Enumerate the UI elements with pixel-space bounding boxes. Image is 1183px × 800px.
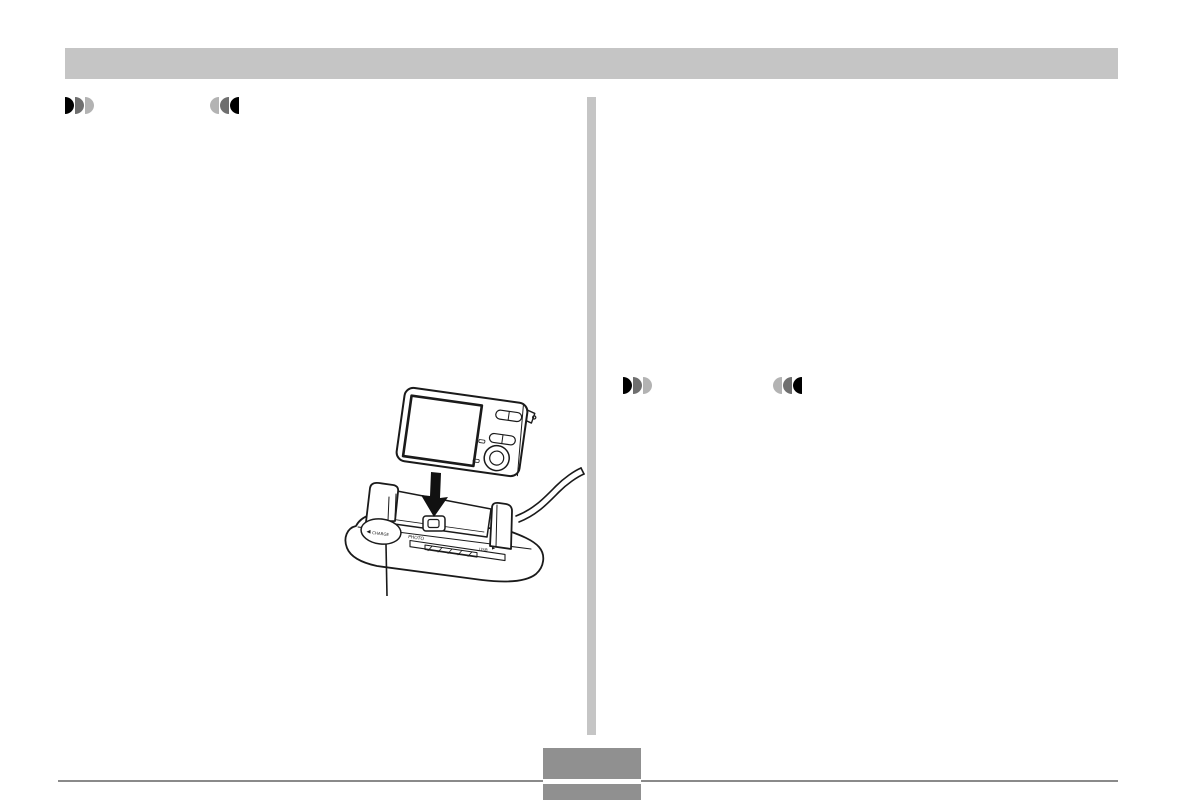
lcd-screen (403, 396, 482, 466)
marker-disc (793, 377, 802, 394)
marker-disc (65, 97, 74, 114)
marker-disc (220, 97, 229, 114)
section-marker-back-icon (773, 377, 802, 394)
section-marker-back-icon (210, 97, 239, 114)
marker-disc (85, 97, 94, 114)
manual-page: PHOTO USB CHARGE (0, 0, 1183, 800)
marker-disc (633, 377, 642, 394)
usb-cable (516, 468, 584, 522)
marker-disc (783, 377, 792, 394)
footer-rule (641, 780, 1118, 782)
marker-disc (230, 97, 239, 114)
section-marker-forward-icon (623, 377, 652, 394)
marker-disc (210, 97, 219, 114)
callout-leader-line (386, 545, 387, 597)
camera-back (395, 387, 537, 479)
page-number-box (543, 748, 641, 779)
footer-rule (58, 780, 543, 782)
marker-disc (75, 97, 84, 114)
section-marker-forward-icon (65, 97, 94, 114)
header-bar (65, 48, 1118, 79)
marker-disc (773, 377, 782, 394)
marker-disc (623, 377, 632, 394)
page-number-box (543, 784, 641, 800)
camera-cradle-illustration: PHOTO USB CHARGE (330, 370, 590, 610)
marker-disc (643, 377, 652, 394)
